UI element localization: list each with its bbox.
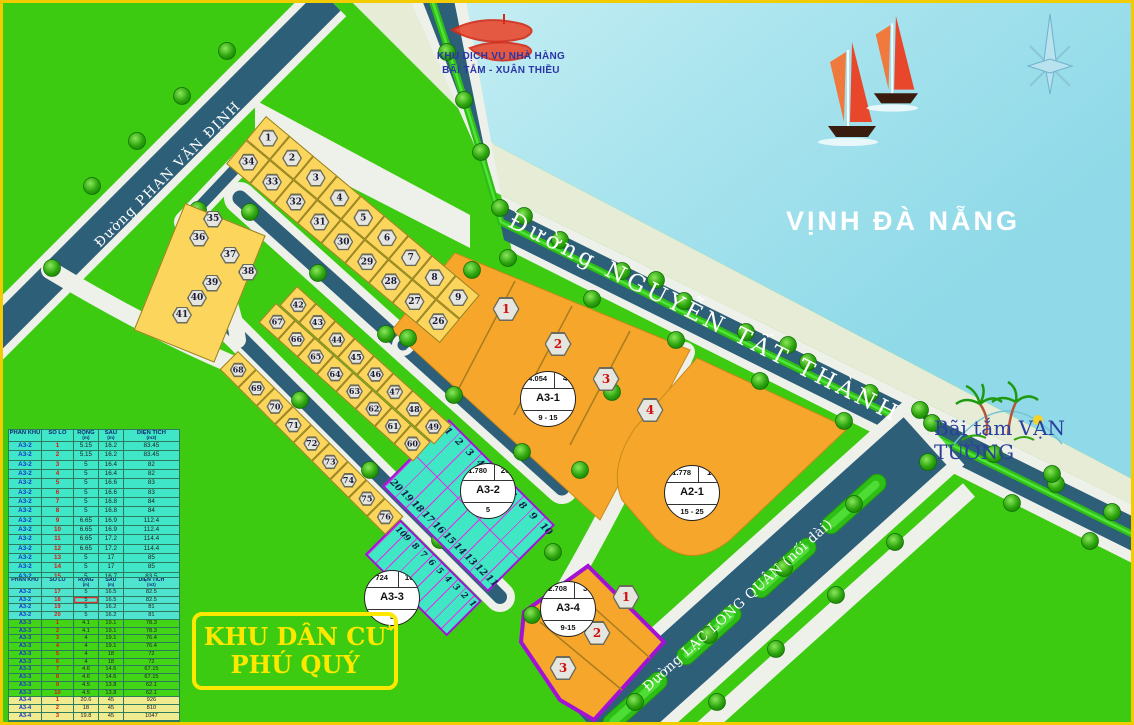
table-cell: 84 xyxy=(124,498,179,506)
table-row: A3-215.1516.283.45 xyxy=(9,442,179,451)
table-cell: A3-3 xyxy=(9,674,42,681)
table-cell: 78.3 xyxy=(124,620,179,627)
table-row: A3-3641872 xyxy=(9,659,179,667)
plot-number: 72 xyxy=(306,438,317,448)
table-row: A3-2116.6517.2114.4 xyxy=(9,535,179,544)
table-cell: A3-4 xyxy=(9,705,42,712)
table-cell: 4.6 xyxy=(74,674,99,681)
table-cell: 16.4 xyxy=(99,461,124,469)
table-cell: 85 xyxy=(124,563,179,571)
table-cell: A3-3 xyxy=(9,620,42,627)
column-header: SỐ LÔ xyxy=(42,578,74,588)
plot-number: 66 xyxy=(291,334,302,344)
table-cell: 16.9 xyxy=(99,526,124,534)
tree-icon xyxy=(846,496,863,513)
plot-number: 31 xyxy=(313,217,326,227)
plot-number: 65 xyxy=(310,351,321,361)
table-cell: 810 xyxy=(124,705,179,712)
plot-number: 34 xyxy=(242,157,255,167)
table-cell: 5 xyxy=(74,479,99,487)
table-row: A3-24516.482 xyxy=(9,470,179,479)
table-cell: 6 xyxy=(42,659,74,666)
table-cell: A3-2 xyxy=(9,535,42,543)
tree-icon xyxy=(44,260,61,277)
table-row: A3-21451785 xyxy=(9,563,179,572)
plot-number: 32 xyxy=(289,197,302,207)
table-cell: 5.15 xyxy=(74,442,99,450)
table-cell: 18 xyxy=(42,597,74,604)
plot-number: 47 xyxy=(389,386,400,396)
plot-number-hex: 69 xyxy=(248,381,265,396)
table-cell: 16.4 xyxy=(99,470,124,478)
tree-icon xyxy=(572,462,589,479)
table-cell: 16.2 xyxy=(99,442,124,450)
table-cell: 4.1 xyxy=(74,620,99,627)
table-cell: A3-2 xyxy=(9,507,42,515)
table-cell: 16.2 xyxy=(99,451,124,459)
table-cell: 6.65 xyxy=(74,535,99,543)
zone-name: A3-1 xyxy=(521,389,575,411)
plot-number-hex: 65 xyxy=(307,349,324,364)
table-cell: A3-2 xyxy=(9,554,42,562)
plot-number-hex: 70 xyxy=(266,399,283,414)
tree-icon xyxy=(84,178,101,195)
table-cell: A3-2 xyxy=(9,597,42,604)
table-row: A3-3541872 xyxy=(9,651,179,659)
zone-badge-A3-2[interactable]: 1.780 20 A3-2 5 xyxy=(460,463,516,519)
table-cell: 12 xyxy=(42,545,74,553)
plot-number-hex: 42 xyxy=(289,297,306,312)
tree-icon xyxy=(545,544,562,561)
tree-icon xyxy=(219,43,236,60)
plot-number-hex: 29 xyxy=(357,253,377,270)
table-cell: 5 xyxy=(74,507,99,515)
table-row: A3-384.614.667.15 xyxy=(9,674,179,682)
table-cell: 16.6 xyxy=(99,479,124,487)
table-cell: A3-2 xyxy=(9,489,42,497)
table-cell: 13.8 xyxy=(99,682,124,689)
plot-number-hex: 9 xyxy=(448,289,468,306)
plot-number: 73 xyxy=(324,456,335,466)
table-row: A3-26516.683 xyxy=(9,489,179,498)
table-row: A3-394.513.862.1 xyxy=(9,682,179,690)
table-cell: 1 xyxy=(42,620,74,627)
table-row: A3-21351785 xyxy=(9,554,179,563)
plot-number: 2 xyxy=(289,153,295,163)
table-row: A3-4319.8451047 xyxy=(9,713,179,721)
table-cell: 19.1 xyxy=(99,643,124,650)
plot-number: 39 xyxy=(206,278,219,288)
table-cell: 82 xyxy=(124,470,179,478)
table-cell: 4 xyxy=(42,643,74,650)
tree-icon xyxy=(828,587,845,604)
table-cell: A3-3 xyxy=(9,643,42,650)
plot-number: 61 xyxy=(387,421,398,431)
tree-icon xyxy=(768,641,785,658)
zone-lot-number: 2 xyxy=(459,590,470,601)
zone-lot-number: 7 xyxy=(418,549,429,560)
table-cell: 3 xyxy=(42,713,74,720)
plot-number: 28 xyxy=(384,276,397,286)
plot-number: 2 xyxy=(593,626,601,640)
resort-label-line1: KHU DỊCH VỤ NHÀ HÀNG xyxy=(428,50,574,64)
plot-number: 38 xyxy=(242,267,255,277)
zone-lot-number: 5 xyxy=(434,566,445,577)
plot-number-hex: 74 xyxy=(340,472,357,487)
column-header: DIỆN TÍCH(m2) xyxy=(124,578,179,588)
table-cell: 3 xyxy=(42,635,74,642)
table-row: A3-3104.513.862.1 xyxy=(9,690,179,698)
table-row: A3-33419.176.4 xyxy=(9,635,179,643)
zone-name: A3-4 xyxy=(541,599,595,621)
plot-number: 7 xyxy=(407,252,413,262)
plot-number-hex: 3 xyxy=(305,169,325,186)
tree-icon xyxy=(500,250,517,267)
table-cell: A3-4 xyxy=(9,713,42,720)
table-cell: A3-3 xyxy=(9,651,42,658)
table-cell: A3-2 xyxy=(9,604,42,611)
plot-number: 9 xyxy=(455,292,461,302)
plot-number: 43 xyxy=(312,317,323,327)
table-cell: 3 xyxy=(42,461,74,469)
table-row: A3-374.614.667.15 xyxy=(9,666,179,674)
table-cell: 82.5 xyxy=(124,589,179,596)
table-cell: 5.15 xyxy=(74,451,99,459)
table-cell: 9 xyxy=(42,682,74,689)
zone-badge-A2-1[interactable]: 1.778 1 A2-1 15 - 25 xyxy=(664,465,720,521)
table-cell: 5 xyxy=(74,461,99,469)
table-cell: A3-3 xyxy=(9,628,42,635)
plot-number-hex: 46 xyxy=(367,367,384,382)
table-row: A3-220516.281 xyxy=(9,612,179,620)
zone-lot-number: 2 xyxy=(453,436,465,448)
table-cell: 14.6 xyxy=(99,674,124,681)
zone-name: A3-2 xyxy=(461,481,515,503)
table-cell: 45 xyxy=(99,697,124,704)
table-cell: 4 xyxy=(74,659,99,666)
table-row: A3-219516.281 xyxy=(9,604,179,612)
table-cell: 1047 xyxy=(124,713,179,720)
table-cell: 6.65 xyxy=(74,517,99,525)
plot-number-hex: 32 xyxy=(285,193,305,210)
table-cell: 10 xyxy=(42,526,74,534)
plot-number: 64 xyxy=(329,369,340,379)
tree-icon xyxy=(836,413,853,430)
plot-number: 36 xyxy=(193,233,206,243)
plot-number-hex: 26 xyxy=(428,313,448,330)
zone-lot-number: 4 xyxy=(442,574,453,585)
lot-table-1: PHÂN KHUSỐ LÔRỘNG(m)SÂU(m)DIỆN TÍCH(m2)A… xyxy=(8,429,180,593)
table-cell: 20 xyxy=(42,612,74,619)
table-cell: 926 xyxy=(124,697,179,704)
table-cell: 83.45 xyxy=(124,451,179,459)
table-cell: 6.65 xyxy=(74,545,99,553)
table-cell: 5 xyxy=(74,470,99,478)
table-cell: 8 xyxy=(42,674,74,681)
plot-number-hex: 45 xyxy=(347,349,364,364)
plot-number: 1 xyxy=(265,133,271,143)
table-cell: 2 xyxy=(42,451,74,459)
table-cell: 4.5 xyxy=(74,682,99,689)
plot-number: 41 xyxy=(176,310,189,320)
tree-icon xyxy=(174,88,191,105)
table-cell: 17 xyxy=(42,589,74,596)
planning-map-canvas: Đường NGUYỄN TẤT THÀNH Đường PHAN VĂN ĐỊ… xyxy=(0,0,1134,725)
plot-number-hex: 1 xyxy=(258,129,278,146)
table-cell: 45 xyxy=(99,713,124,720)
plot-number-hex: 30 xyxy=(333,233,353,250)
plot-number: 76 xyxy=(380,511,391,521)
zone-badge-A3-4[interactable]: 2.708 3 A3-4 9-15 xyxy=(540,581,596,637)
table-cell: 112.4 xyxy=(124,526,179,534)
table-cell: 81 xyxy=(124,604,179,611)
plot-number: 4 xyxy=(646,403,654,417)
table-cell: 13.8 xyxy=(99,690,124,697)
table-cell: 76.4 xyxy=(124,643,179,650)
lot-table-2: PHÂN KHUSỐ LÔRỘNG(m)SÂU(m)DIỆN TÍCH(m2)A… xyxy=(8,577,180,722)
plot-number: 67 xyxy=(271,316,282,326)
plot-number-hex: 6 xyxy=(377,229,397,246)
plot-number-hex: 68 xyxy=(230,362,247,377)
plot-number-hex: 27 xyxy=(404,293,424,310)
zone-badge-A3-1[interactable]: 4.054 4 A3-1 9 - 15 xyxy=(520,371,576,427)
table-cell: 19.1 xyxy=(99,635,124,642)
plot-number: 45 xyxy=(350,352,361,362)
table-cell: 6.65 xyxy=(74,526,99,534)
tree-icon xyxy=(524,607,541,624)
table-row: A3-324.119.178.3 xyxy=(9,628,179,636)
plot-number: 2 xyxy=(554,337,562,351)
tree-icon xyxy=(400,330,417,347)
table-cell: 82.5 xyxy=(124,597,179,604)
table-cell: 114.4 xyxy=(124,545,179,553)
table-cell: A3-4 xyxy=(9,697,42,704)
plot-number-hex: 31 xyxy=(309,213,329,230)
column-header: SÂU(m) xyxy=(99,430,124,441)
table-cell: 67.15 xyxy=(124,674,179,681)
table-cell: 78.3 xyxy=(124,628,179,635)
bay-name-label: VỊNH ĐÀ NẴNG xyxy=(786,206,1020,237)
plot-number-hex: 61 xyxy=(384,418,401,433)
table-cell: 16.8 xyxy=(99,498,124,506)
table-cell: A3-2 xyxy=(9,479,42,487)
table-cell: 17.2 xyxy=(99,545,124,553)
table-cell: 16.5 xyxy=(99,597,124,604)
table-row: A3-218516.582.5 xyxy=(9,597,179,605)
table-cell: 18 xyxy=(74,705,99,712)
plot-number: 70 xyxy=(269,401,280,411)
project-callout[interactable]: KHU DÂN CƯ PHÚ QUÝ xyxy=(192,612,398,690)
table-cell: 4.6 xyxy=(74,666,99,673)
plot-number: 8 xyxy=(431,272,437,282)
table-cell: 14.6 xyxy=(99,666,124,673)
table-cell: 8 xyxy=(42,507,74,515)
plot-number: 37 xyxy=(224,250,237,260)
column-header: DIỆN TÍCH(m2) xyxy=(124,430,179,441)
plot-number-hex: 7 xyxy=(400,249,420,266)
plot-number: 63 xyxy=(349,386,360,396)
tree-icon xyxy=(752,373,769,390)
table-row: A3-34419.176.4 xyxy=(9,643,179,651)
table-cell: 4.5 xyxy=(74,690,99,697)
plot-number: 48 xyxy=(408,404,419,414)
plot-number-hex: 44 xyxy=(328,332,345,347)
zone-lot-number: 3 xyxy=(463,447,475,459)
tree-icon xyxy=(1004,495,1021,512)
plot-number: 74 xyxy=(343,475,354,485)
plot-number: 30 xyxy=(337,237,350,247)
table-cell: 16.2 xyxy=(99,612,124,619)
plot-number: 46 xyxy=(370,369,381,379)
table-cell: 2 xyxy=(42,628,74,635)
plot-number-hex: 34 xyxy=(238,153,258,170)
plot-number-hex: 49 xyxy=(425,419,442,434)
plot-number-hex: 64 xyxy=(326,366,343,381)
column-header: RỘNG(m) xyxy=(74,430,99,441)
plot-number: 3 xyxy=(559,661,567,675)
table-cell: 67.15 xyxy=(124,666,179,673)
tree-icon xyxy=(456,92,473,109)
table-cell: 4 xyxy=(74,635,99,642)
plot-number-hex: 62 xyxy=(365,401,382,416)
zone-lot-number: 6 xyxy=(426,557,437,568)
table-cell: 82 xyxy=(124,461,179,469)
callout-line1: KHU DÂN CƯ xyxy=(204,623,387,651)
table-cell: 72 xyxy=(124,651,179,658)
table-cell: 83.45 xyxy=(124,442,179,450)
table-cell: 16.9 xyxy=(99,517,124,525)
plot-number-hex: 2 xyxy=(282,149,302,166)
table-row: A3-296.6516.9112.4 xyxy=(9,517,179,526)
table-cell: 16.5 xyxy=(99,589,124,596)
table-cell: 1 xyxy=(42,697,74,704)
table-cell: 2 xyxy=(42,705,74,712)
tree-icon xyxy=(514,444,531,461)
tree-icon xyxy=(627,694,644,711)
plot-number-hex: 5 xyxy=(353,209,373,226)
plot-number: 6 xyxy=(384,232,390,242)
table-cell: A3-2 xyxy=(9,461,42,469)
table-cell: 62.1 xyxy=(124,690,179,697)
table-row: A3-28516.884 xyxy=(9,507,179,516)
table-cell: 5 xyxy=(74,612,99,619)
table-row: A3-2126.6517.2114.4 xyxy=(9,545,179,554)
plot-number-hex: 28 xyxy=(380,273,400,290)
column-header: SỐ LÔ xyxy=(42,430,74,441)
table-cell: 5 xyxy=(74,589,99,596)
table-cell: A3-2 xyxy=(9,589,42,596)
table-cell: 19.1 xyxy=(99,620,124,627)
tree-icon xyxy=(668,332,685,349)
table-cell: 17 xyxy=(99,563,124,571)
tree-icon xyxy=(129,133,146,150)
plot-number: 40 xyxy=(191,293,204,303)
plot-number-hex: 72 xyxy=(303,436,320,451)
tree-icon xyxy=(709,694,726,711)
table-cell: 4 xyxy=(42,470,74,478)
table-cell: 19.1 xyxy=(99,628,124,635)
table-cell: 5 xyxy=(74,563,99,571)
plot-number: 3 xyxy=(312,173,318,183)
zone-lot-number: 9 xyxy=(527,510,539,522)
plot-number-hex: 73 xyxy=(321,454,338,469)
table-cell: A3-3 xyxy=(9,659,42,666)
tree-icon xyxy=(912,402,929,419)
plot-number-hex: 48 xyxy=(405,401,422,416)
table-cell: A3-2 xyxy=(9,563,42,571)
tree-icon xyxy=(310,265,327,282)
plot-number: 49 xyxy=(428,421,439,431)
table-cell: 112.4 xyxy=(124,517,179,525)
table-cell: 62.1 xyxy=(124,682,179,689)
table-cell: A3-3 xyxy=(9,682,42,689)
plot-number: 1 xyxy=(502,302,510,316)
table-cell: 6 xyxy=(42,489,74,497)
table-cell: A3-2 xyxy=(9,612,42,619)
tree-icon xyxy=(362,462,379,479)
table-cell: 81 xyxy=(124,612,179,619)
table-cell: 16.2 xyxy=(99,604,124,611)
tree-icon xyxy=(242,204,259,221)
table-cell: 5 xyxy=(74,597,99,604)
tree-icon xyxy=(473,144,490,161)
table-cell: 19 xyxy=(42,604,74,611)
plot-number: 1 xyxy=(622,590,630,604)
table-cell: 5 xyxy=(74,554,99,562)
plot-number-hex: 60 xyxy=(404,436,421,451)
column-header: PHÂN KHU xyxy=(9,430,42,441)
tree-icon xyxy=(1104,504,1121,521)
table-cell: 7 xyxy=(42,666,74,673)
tree-icon xyxy=(464,262,481,279)
table-cell: 16.6 xyxy=(99,489,124,497)
table-row: A3-2106.6516.9112.4 xyxy=(9,526,179,535)
tree-icon xyxy=(378,326,395,343)
plot-number: 3 xyxy=(602,372,610,386)
plot-number-hex: 67 xyxy=(268,314,285,329)
table-cell: 83 xyxy=(124,489,179,497)
plot-number-hex: 33 xyxy=(262,173,282,190)
table-row: A3-4120.645926 xyxy=(9,697,179,705)
tree-icon xyxy=(887,534,904,551)
plot-number: 26 xyxy=(432,316,445,326)
zone-lot-number: 8 xyxy=(516,500,528,512)
plot-number: 62 xyxy=(368,403,379,413)
column-header: PHÂN KHU xyxy=(9,578,42,588)
table-cell: A3-2 xyxy=(9,517,42,525)
plot-number: 69 xyxy=(251,383,262,393)
table-cell: 17.2 xyxy=(99,535,124,543)
plot-number: 44 xyxy=(331,334,342,344)
plot-number: 27 xyxy=(408,296,421,306)
table-row: A3-225.1516.283.45 xyxy=(9,451,179,460)
table-cell: 84 xyxy=(124,507,179,515)
zone-name: A3-3 xyxy=(365,588,419,610)
plot-number-hex: 75 xyxy=(358,491,375,506)
table-cell: A3-3 xyxy=(9,690,42,697)
table-cell: 11 xyxy=(42,535,74,543)
table-cell: 18 xyxy=(99,651,124,658)
table-cell: 4 xyxy=(74,643,99,650)
table-cell: 76.4 xyxy=(124,635,179,642)
table-cell: A3-2 xyxy=(9,470,42,478)
table-cell: 45 xyxy=(99,705,124,712)
plot-number-hex: 8 xyxy=(424,269,444,286)
plot-number: 60 xyxy=(407,438,418,448)
plot-number: 4 xyxy=(336,193,342,203)
plot-number-hex: 4 xyxy=(329,189,349,206)
zone-name: A2-1 xyxy=(665,483,719,505)
